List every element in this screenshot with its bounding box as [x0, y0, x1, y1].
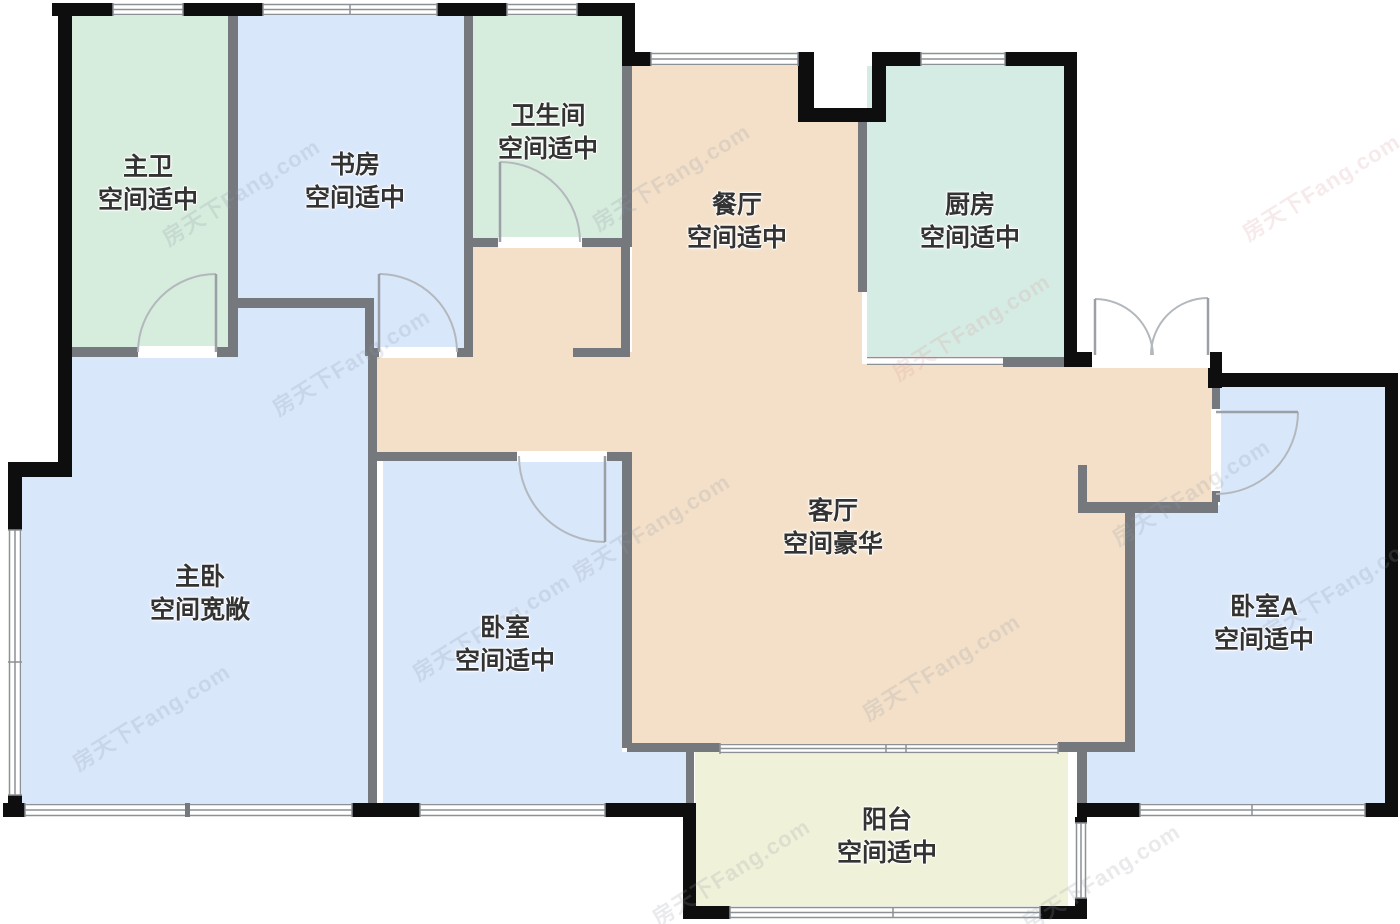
label-kitchen: 厨房 空间适中 — [920, 189, 1020, 255]
label-study: 书房 空间适中 — [305, 149, 405, 215]
room-master-bedroom — [22, 308, 369, 805]
entry-door-left-arc — [1095, 299, 1153, 355]
room-desc: 空间适中 — [98, 184, 198, 217]
room-desc: 空间适中 — [1214, 624, 1314, 657]
room-desc: 空间豪华 — [783, 528, 883, 561]
entry-door-right-arc — [1151, 298, 1208, 355]
floorplan-drawing — [0, 0, 1400, 924]
room-name: 餐厅 — [687, 189, 787, 222]
room-desc: 空间适中 — [305, 182, 405, 215]
room-desc: 空间适中 — [498, 133, 598, 166]
room-name: 厨房 — [920, 189, 1020, 222]
room-desc: 空间适中 — [687, 222, 787, 255]
room-name: 书房 — [305, 149, 405, 182]
label-bedroom: 卧室 空间适中 — [455, 612, 555, 678]
label-master-bedroom: 主卧 空间宽敞 — [150, 561, 250, 627]
room-name: 主卫 — [98, 151, 198, 184]
label-bathroom: 卫生间 空间适中 — [498, 100, 598, 166]
room-desc: 空间适中 — [920, 222, 1020, 255]
floorplan-canvas: 房天下Fang.com 房天下Fang.com 房天下Fang.com 房天下F… — [0, 0, 1400, 924]
label-master-bath: 主卫 空间适中 — [98, 151, 198, 217]
label-balcony: 阳台 空间适中 — [837, 804, 937, 870]
room-name: 卧室 — [455, 612, 555, 645]
room-desc: 空间适中 — [837, 837, 937, 870]
label-bedroom-a: 卧室A 空间适中 — [1214, 591, 1314, 657]
room-desc: 空间宽敞 — [150, 594, 250, 627]
room-name: 客厅 — [783, 495, 883, 528]
room-name: 卫生间 — [498, 100, 598, 133]
label-dining-room: 餐厅 空间适中 — [687, 189, 787, 255]
room-name: 卧室A — [1214, 591, 1314, 624]
label-living-room: 客厅 空间豪华 — [783, 495, 883, 561]
room-name: 主卧 — [150, 561, 250, 594]
room-name: 阳台 — [837, 804, 937, 837]
room-desc: 空间适中 — [455, 645, 555, 678]
